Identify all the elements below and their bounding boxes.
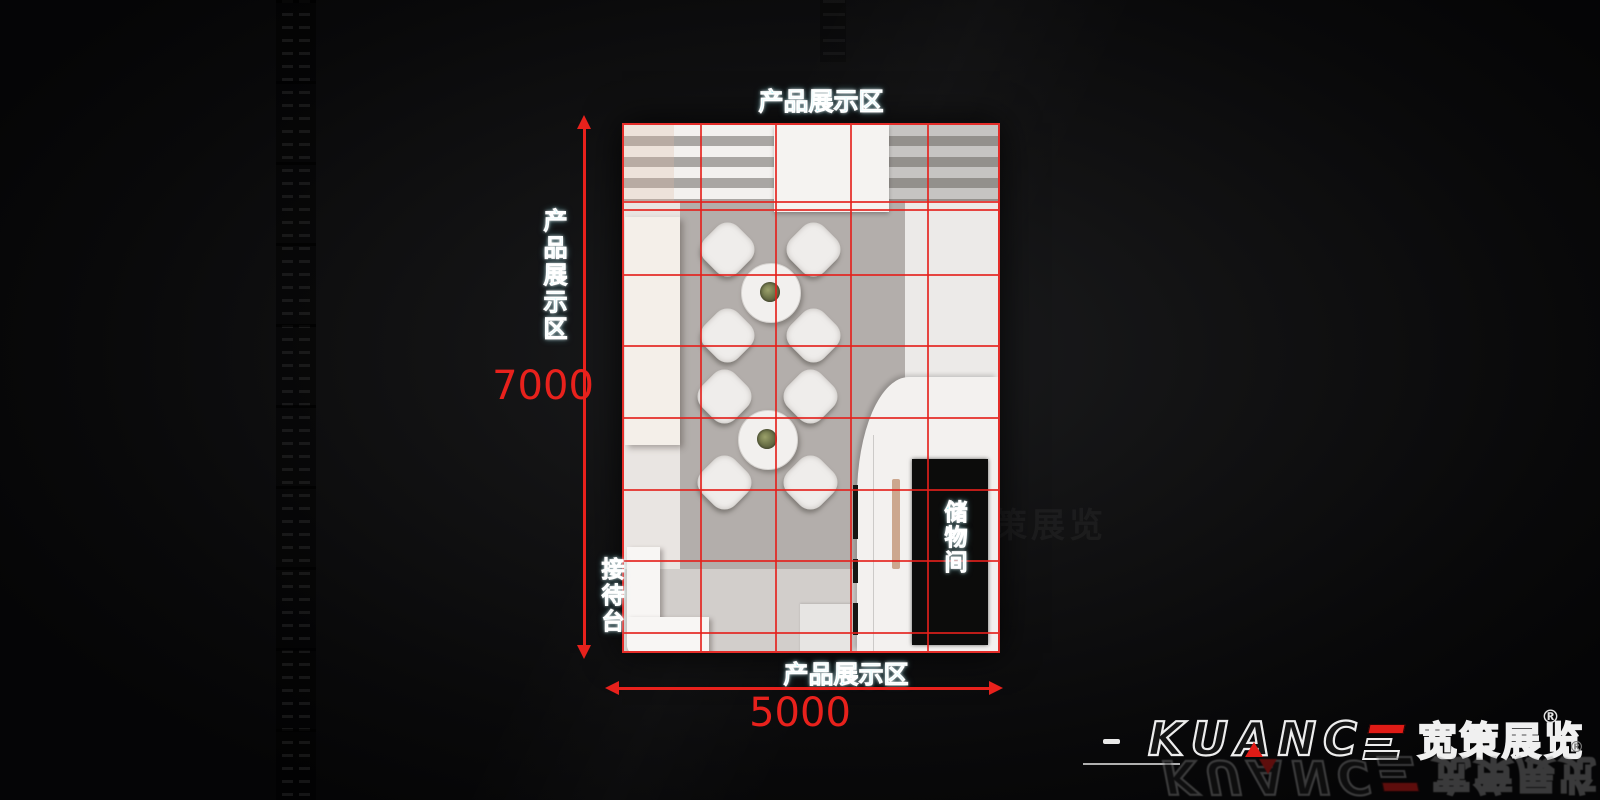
grid-line [624, 489, 998, 491]
wall-slit [853, 603, 858, 635]
table-plant [757, 429, 777, 449]
arrow-left-icon [605, 681, 619, 695]
label-top-display-area: 产品展示区 [671, 82, 971, 118]
label-reception-desk: 接待台 [593, 557, 627, 635]
grid-line [775, 125, 777, 651]
table-plant [760, 282, 780, 302]
grid-line [624, 417, 998, 419]
arrow-up-icon [577, 115, 591, 129]
dimension-width-value: 5000 [720, 690, 880, 736]
booth-floorplan-render: 宽策展览 [0, 0, 1600, 800]
grid-line [700, 125, 702, 651]
display-shelves-left-tint [624, 125, 674, 201]
label-storage-room: 储物间 [936, 500, 970, 575]
wall-slit [853, 559, 858, 583]
arrow-down-icon [577, 645, 591, 659]
logo-dash [1103, 739, 1120, 744]
display-shelves-right-tint [886, 125, 998, 201]
grid-line [624, 274, 998, 276]
floor-mat [800, 604, 852, 653]
background-filmstrip-texture [276, 0, 316, 800]
grid-line [850, 125, 852, 651]
reception-desk [627, 617, 709, 653]
side-cabinet [625, 217, 680, 445]
grid-line [624, 632, 998, 634]
registered-trademark-icon: ® [1541, 706, 1560, 728]
grid-line [624, 201, 998, 203]
arrow-right-icon [989, 681, 1003, 695]
dimension-height-value: 7000 [463, 363, 623, 409]
label-bottom-display-area: 产品展示区 [696, 655, 996, 691]
grid-line [624, 209, 998, 211]
kuance-logo-reflection: K U A N C 宽策展览 [1162, 754, 1600, 800]
grid-line [927, 125, 929, 651]
background-filmstrip-texture-top [820, 0, 846, 62]
door-fixture [892, 479, 900, 569]
label-left-display-area: 产品展示区 [536, 208, 571, 343]
display-center-panel [774, 125, 889, 212]
grid-line [624, 345, 998, 347]
wall-edge-line [873, 435, 874, 651]
wall-slit [853, 485, 858, 539]
